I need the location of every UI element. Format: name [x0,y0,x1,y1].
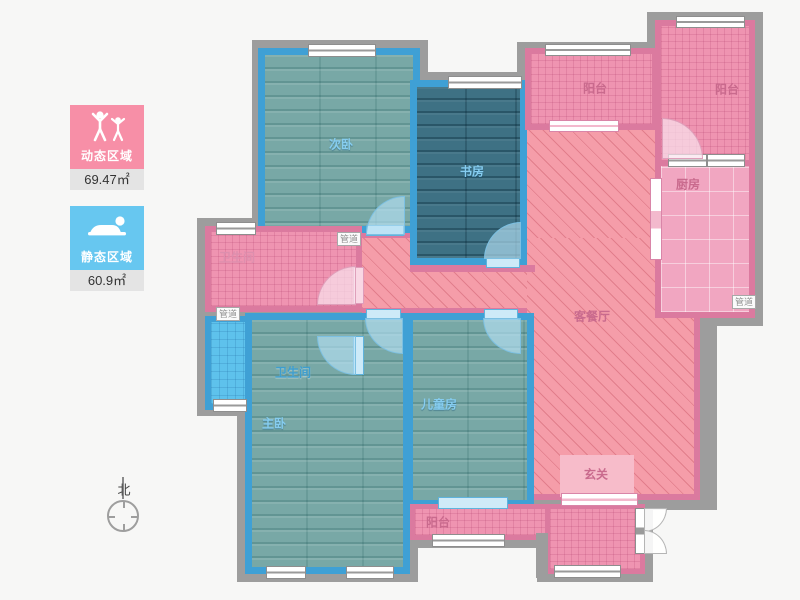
dynamic-area-value: 69.47㎡ [70,169,144,190]
kitchen-sliding-door [650,178,662,260]
entry-door-arc [644,508,667,532]
static-area-value: 60.9㎡ [70,270,144,291]
window [216,222,256,235]
room-label-entry-hall: 玄关 [584,466,608,483]
room-label-kids-room: 儿童房 [421,396,457,413]
window [707,154,745,167]
window [308,44,376,57]
window [448,76,522,89]
compass-icon [107,500,139,532]
room-label-kitchen: 厨房 [676,176,700,193]
window [266,566,306,579]
dynamic-area-label: 动态区域 [70,147,144,164]
window [545,44,631,56]
wall [536,533,548,578]
balcony-rail-window [438,497,508,509]
room-label-balcony-top-right: 阳台 [715,81,739,98]
room-label-secondary-bedroom: 次卧 [329,136,353,153]
balcony-rail-window [561,493,638,506]
entry-door-arc [644,530,667,554]
person-resting-icon [83,212,131,242]
room-label-master-bedroom: 主卧 [262,415,286,432]
people-active-icon [84,110,130,142]
duct-label: 管道 [732,295,756,309]
room-label-study: 书房 [460,163,484,180]
room-label-bathroom-lower: 卫生间 [275,364,311,381]
dynamic-area-card: 动态区域 [70,105,144,169]
static-area-card: 静态区域 [70,206,144,270]
window [432,534,505,547]
room-label-bathroom-upper: 卫生间 [219,249,255,266]
room-balcony-bottom-right [545,504,645,574]
room-label-balcony-bottom: 阳台 [426,514,450,531]
living-dining-upper-area [527,126,655,242]
room-label-balcony-top-middle: 阳台 [583,80,607,97]
room-label-living-dining: 客餐厅 [574,308,610,325]
duct-label: 管道 [337,232,361,246]
floor-plan: 次卧 书房 阳台 阳台 厨房 卫生间 卫生间 客餐厅 玄关 主卧 儿童房 阳台 … [0,0,800,600]
window [213,399,247,412]
window [346,566,394,579]
door-leaf [486,258,520,268]
balcony-rail-window [549,120,619,132]
north-label: 北 [117,480,130,499]
duct-label: 管道 [216,307,240,321]
window [676,16,745,28]
static-area-label: 静态区域 [70,248,144,265]
window [554,565,621,578]
